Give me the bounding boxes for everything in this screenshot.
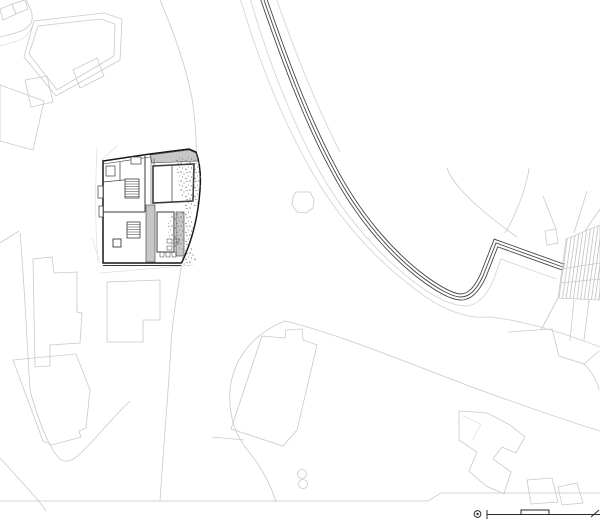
stair-treads <box>125 182 139 197</box>
lot-boundary-curve <box>230 321 285 502</box>
north-symbol-dot <box>476 513 478 515</box>
tree-outline <box>292 192 314 213</box>
parcel-building <box>558 483 583 505</box>
lot-boundary-curve <box>171 263 182 345</box>
parcel-building <box>25 76 53 107</box>
stair-upper <box>125 179 139 198</box>
street-edge <box>96 148 98 263</box>
parcel-building <box>508 329 599 364</box>
column <box>113 239 121 247</box>
lot-boundary-curve <box>160 345 171 501</box>
twin-circle <box>298 470 307 479</box>
street-curve <box>0 0 32 37</box>
parcel-building <box>231 329 317 446</box>
street-curve <box>0 458 46 511</box>
street-curve <box>20 233 130 461</box>
lot-boundary-curve <box>285 321 600 431</box>
parcel-line <box>584 364 599 390</box>
parcel-line <box>574 191 587 233</box>
lot-boundary-curve <box>160 0 196 152</box>
road-edge-lines <box>240 0 600 347</box>
interior-room <box>106 166 115 176</box>
parcel-line <box>0 493 600 501</box>
parcel-line <box>0 231 19 243</box>
footpath <box>505 168 529 233</box>
scale-bar-arrow <box>591 510 599 517</box>
stair-tread-hatch <box>558 225 600 300</box>
roof-block <box>131 157 141 164</box>
parcel-building <box>527 478 558 504</box>
parcel-outlines <box>0 0 600 511</box>
stair-outline <box>125 179 139 198</box>
lot-line <box>102 146 117 160</box>
parcel-building <box>24 13 122 96</box>
road-inner-mask <box>263 0 564 297</box>
site-plan-drawing <box>0 0 600 522</box>
road-edge <box>276 0 340 152</box>
footpath <box>447 168 517 237</box>
stair-lower <box>127 222 140 238</box>
parcel-line <box>545 229 558 245</box>
parcel-outline <box>12 0 28 14</box>
wall-tab <box>98 186 103 198</box>
outdoor-stair <box>558 225 600 300</box>
street-edge <box>100 265 193 273</box>
scale-bar <box>474 510 600 519</box>
scale-bar-segment <box>521 510 549 515</box>
parcel-building <box>13 354 90 445</box>
wall-tab <box>99 206 103 217</box>
parcel-line <box>584 300 589 340</box>
parcel-building <box>459 411 525 494</box>
parcel-line <box>541 298 558 330</box>
parcel-building <box>33 257 82 367</box>
twin-circle <box>299 480 308 489</box>
parcel-outline <box>0 4 16 20</box>
site-plan-canvas <box>0 0 600 522</box>
parcel-line <box>570 300 574 341</box>
road-triple-line <box>263 0 564 297</box>
parcel-building <box>0 85 44 150</box>
parcel-line <box>543 196 556 229</box>
parcel-building-inner <box>463 416 481 441</box>
road-edge <box>240 0 600 347</box>
terrace-strip <box>146 205 155 262</box>
main-building <box>98 149 202 268</box>
parcel-building <box>107 280 160 342</box>
street-edge <box>92 238 100 263</box>
